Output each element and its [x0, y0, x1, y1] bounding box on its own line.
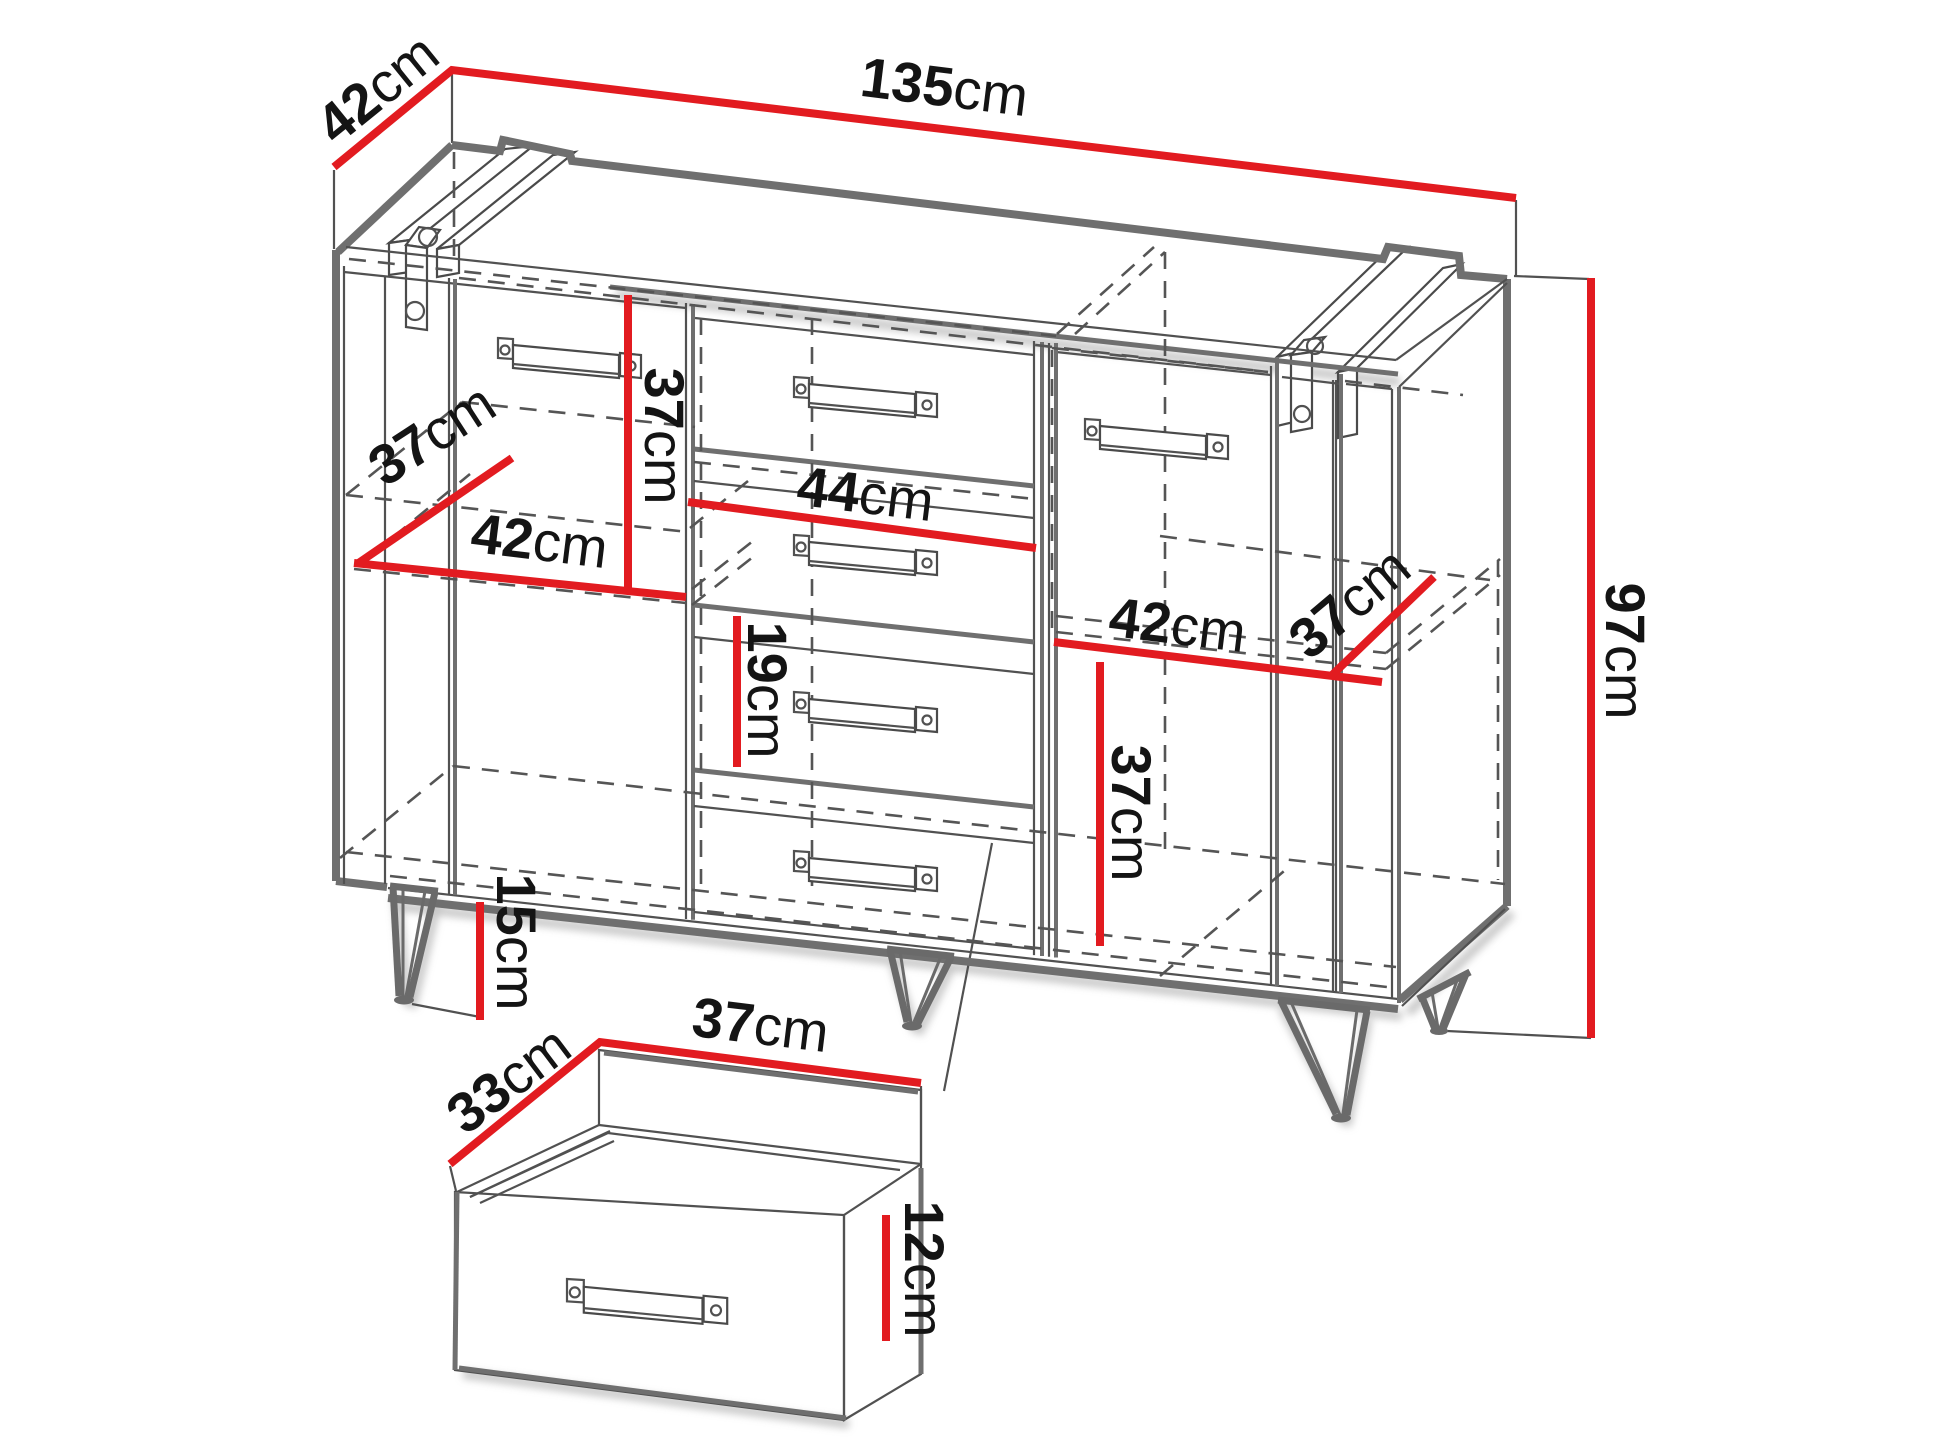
svg-text:15cm: 15cm [485, 874, 548, 1011]
svg-text:19cm: 19cm [736, 622, 799, 759]
svg-text:37cm: 37cm [633, 368, 696, 505]
svg-text:97cm: 97cm [1594, 583, 1657, 720]
svg-text:37cm: 37cm [1100, 745, 1163, 882]
svg-text:12cm: 12cm [893, 1201, 956, 1338]
